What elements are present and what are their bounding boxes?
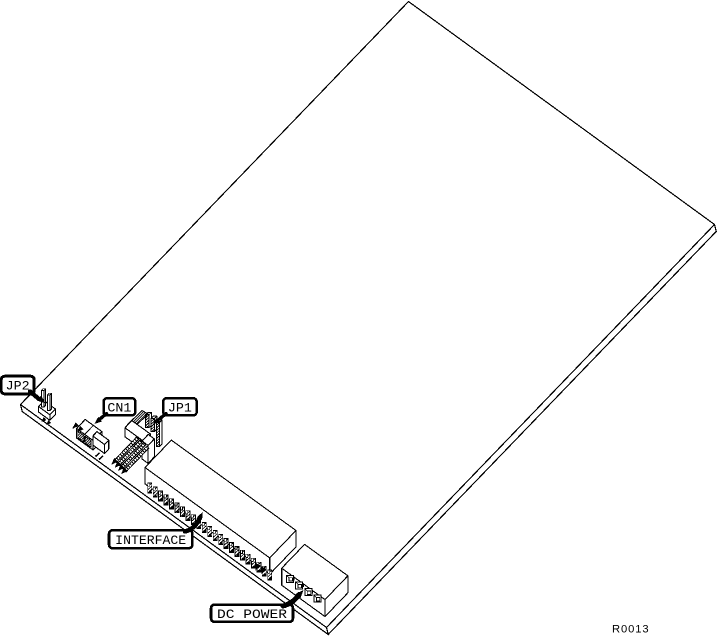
svg-text:R0013: R0013 bbox=[612, 624, 649, 636]
svg-text:INTERFACE: INTERFACE bbox=[115, 533, 186, 548]
svg-text:JP1: JP1 bbox=[168, 400, 192, 415]
svg-text:DC POWER: DC POWER bbox=[217, 607, 287, 622]
svg-text:CN1: CN1 bbox=[107, 400, 131, 415]
svg-text:JP2: JP2 bbox=[6, 379, 30, 394]
